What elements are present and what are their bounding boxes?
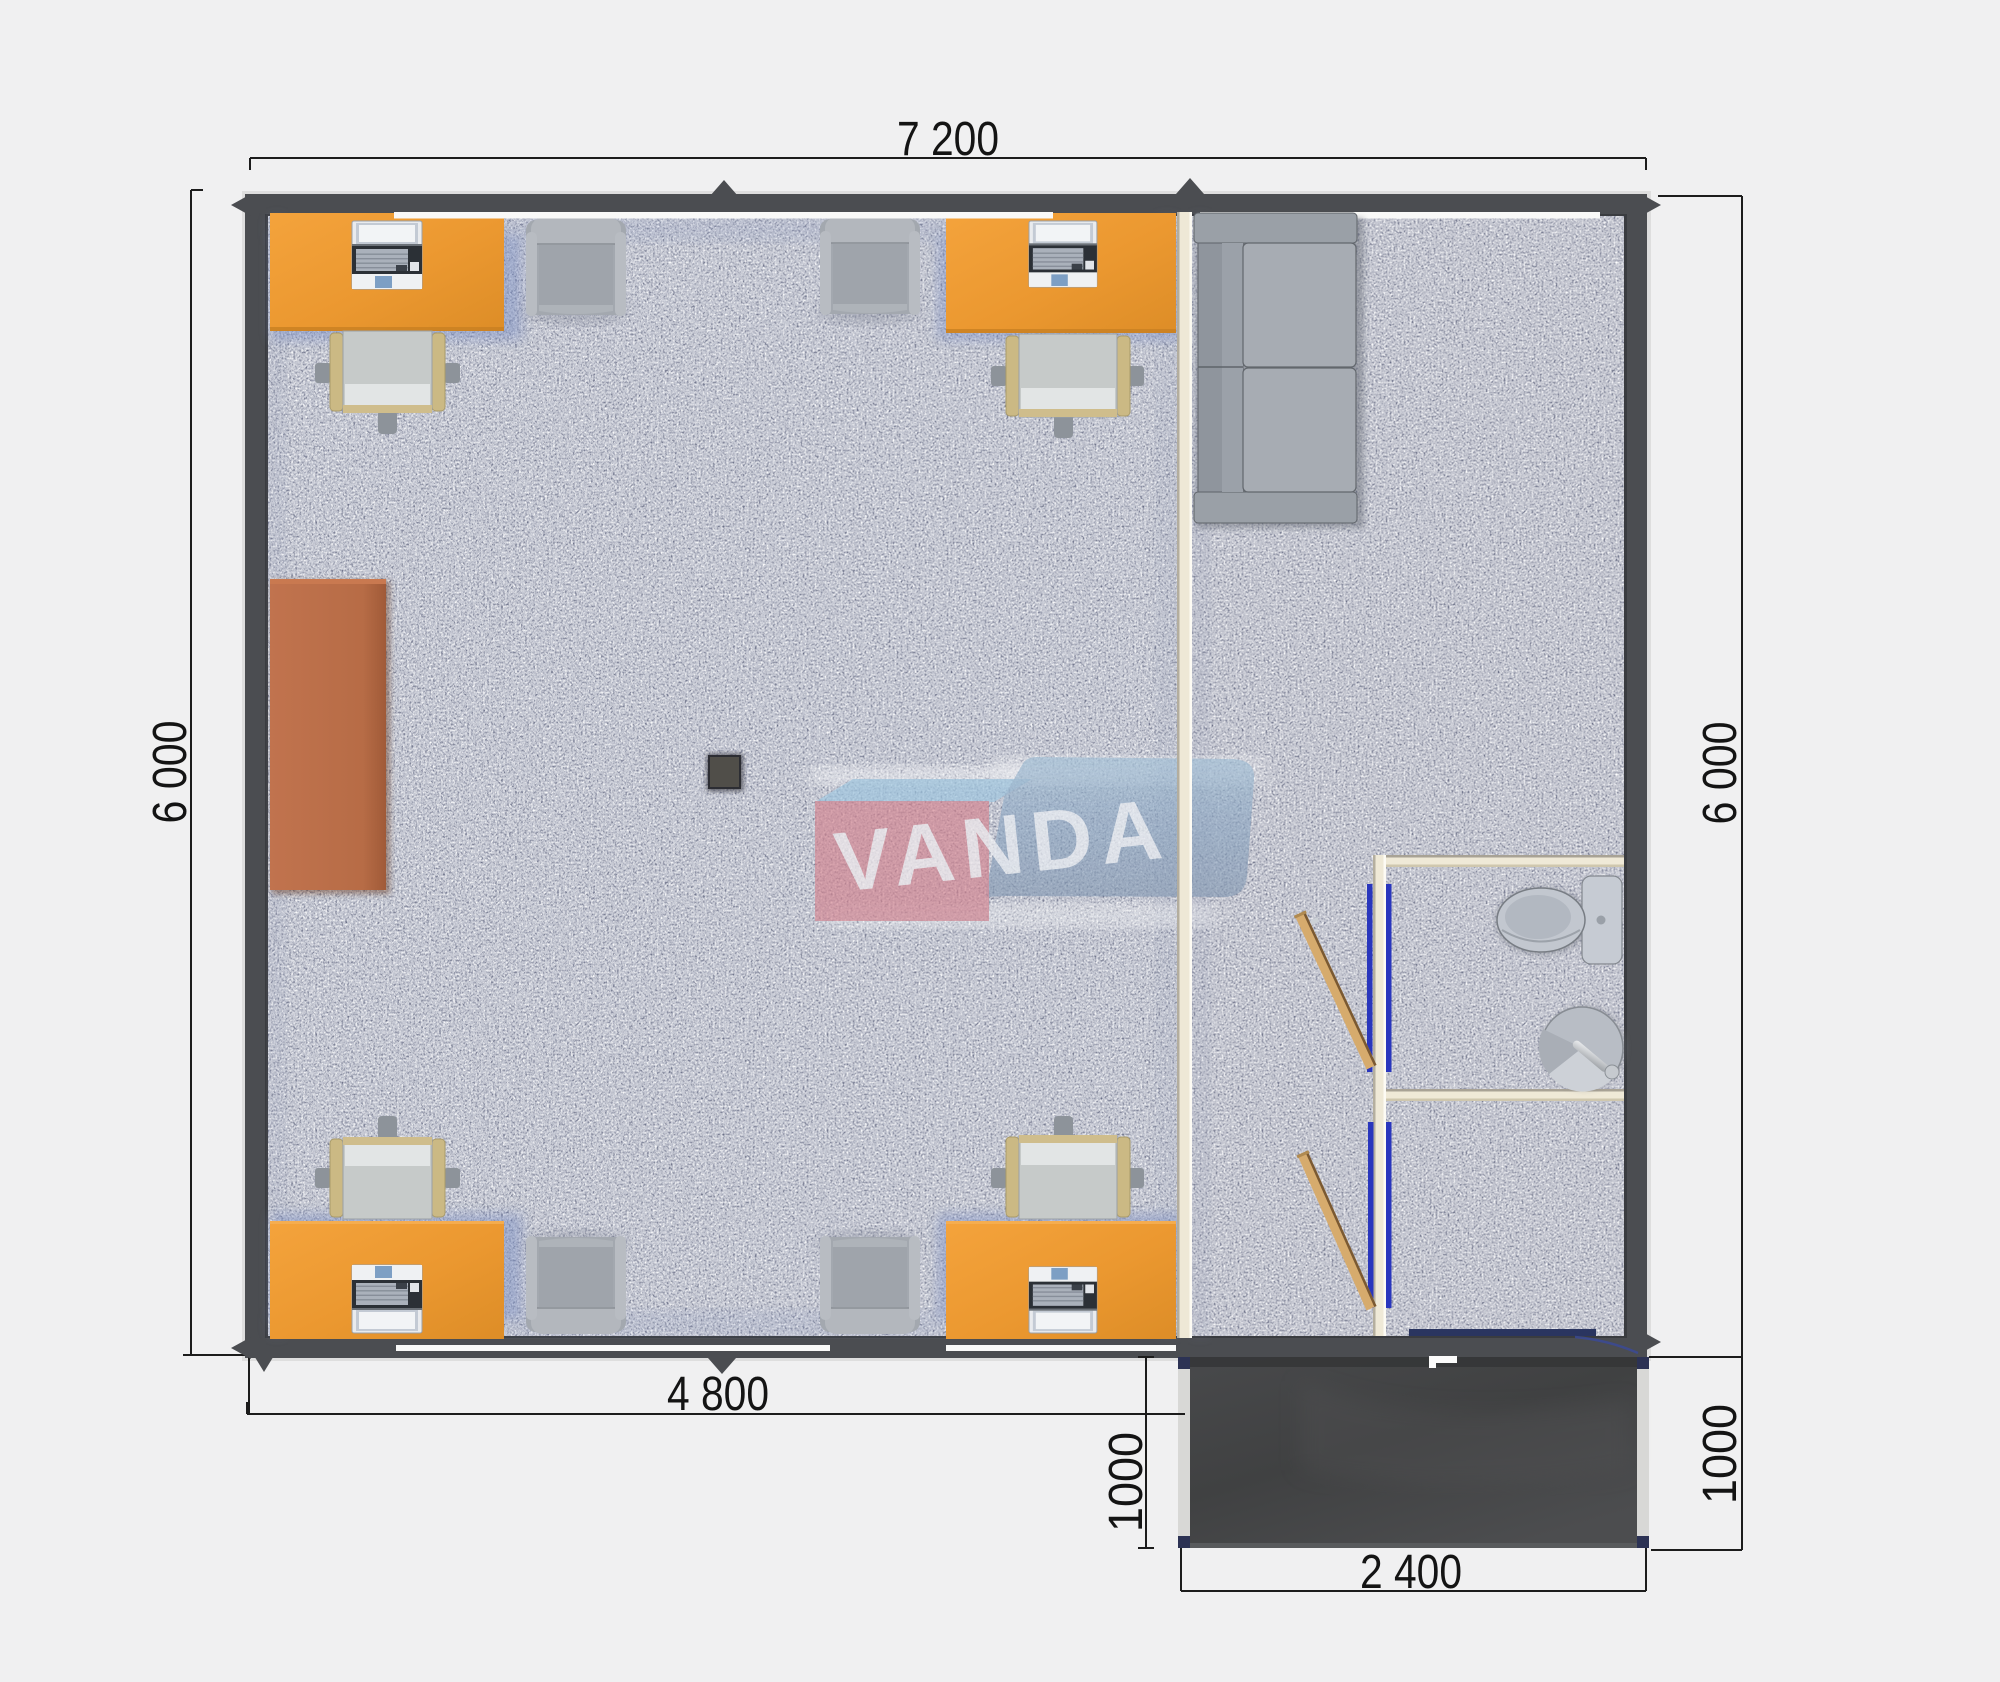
svg-text:2 400: 2 400 <box>1360 1546 1462 1599</box>
svg-text:6 000: 6 000 <box>144 721 197 824</box>
svg-text:7 200: 7 200 <box>897 113 999 166</box>
svg-text:1000: 1000 <box>1694 1404 1747 1504</box>
svg-text:1000: 1000 <box>1100 1432 1153 1532</box>
svg-text:4 800: 4 800 <box>667 1368 769 1421</box>
svg-text:6 000: 6 000 <box>1694 722 1747 825</box>
